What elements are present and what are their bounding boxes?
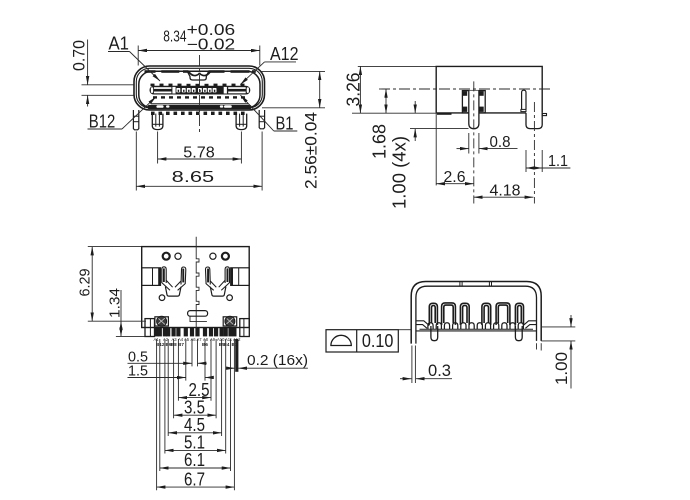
svg-text:A6: A6 — [191, 337, 197, 342]
svg-text:B12: B12 — [89, 112, 116, 132]
svg-text:1.5: 1.5 — [128, 364, 148, 380]
svg-text:3.26: 3.26 — [344, 73, 364, 107]
svg-text:1.1: 1.1 — [548, 153, 568, 170]
svg-text:2.56±0.04: 2.56±0.04 — [302, 112, 321, 189]
svg-text:8.34: 8.34 — [163, 29, 186, 46]
svg-text:−0.02: −0.02 — [187, 37, 236, 54]
svg-text:0.8: 0.8 — [490, 134, 511, 151]
svg-text:2.6: 2.6 — [444, 169, 466, 186]
svg-text:6.29: 6.29 — [78, 269, 94, 297]
svg-text:A1: A1 — [109, 34, 130, 54]
svg-text:1.00: 1.00 — [552, 352, 571, 385]
svg-text:1.68: 1.68 — [370, 124, 390, 159]
svg-text:B4: B4 — [224, 342, 230, 347]
svg-text:4.18: 4.18 — [490, 182, 521, 199]
svg-text:B1: B1 — [276, 114, 294, 134]
svg-text:0.10: 0.10 — [362, 330, 394, 351]
svg-text:1.00 (4x): 1.00 (4x) — [390, 136, 410, 209]
svg-text:6.1: 6.1 — [184, 450, 205, 470]
svg-text:0.70: 0.70 — [71, 40, 89, 71]
svg-text:5.78: 5.78 — [183, 145, 215, 162]
svg-text:8.65: 8.65 — [172, 169, 215, 186]
svg-text:6.7: 6.7 — [184, 469, 205, 489]
svg-text:0.2 (16x): 0.2 (16x) — [247, 353, 308, 369]
svg-text:B7: B7 — [178, 342, 184, 347]
svg-text:B12: B12 — [156, 342, 165, 347]
svg-text:A5: A5 — [184, 337, 190, 342]
svg-text:A12: A12 — [270, 44, 299, 64]
svg-text:0.3: 0.3 — [428, 361, 451, 380]
svg-text:1.34: 1.34 — [108, 288, 124, 318]
